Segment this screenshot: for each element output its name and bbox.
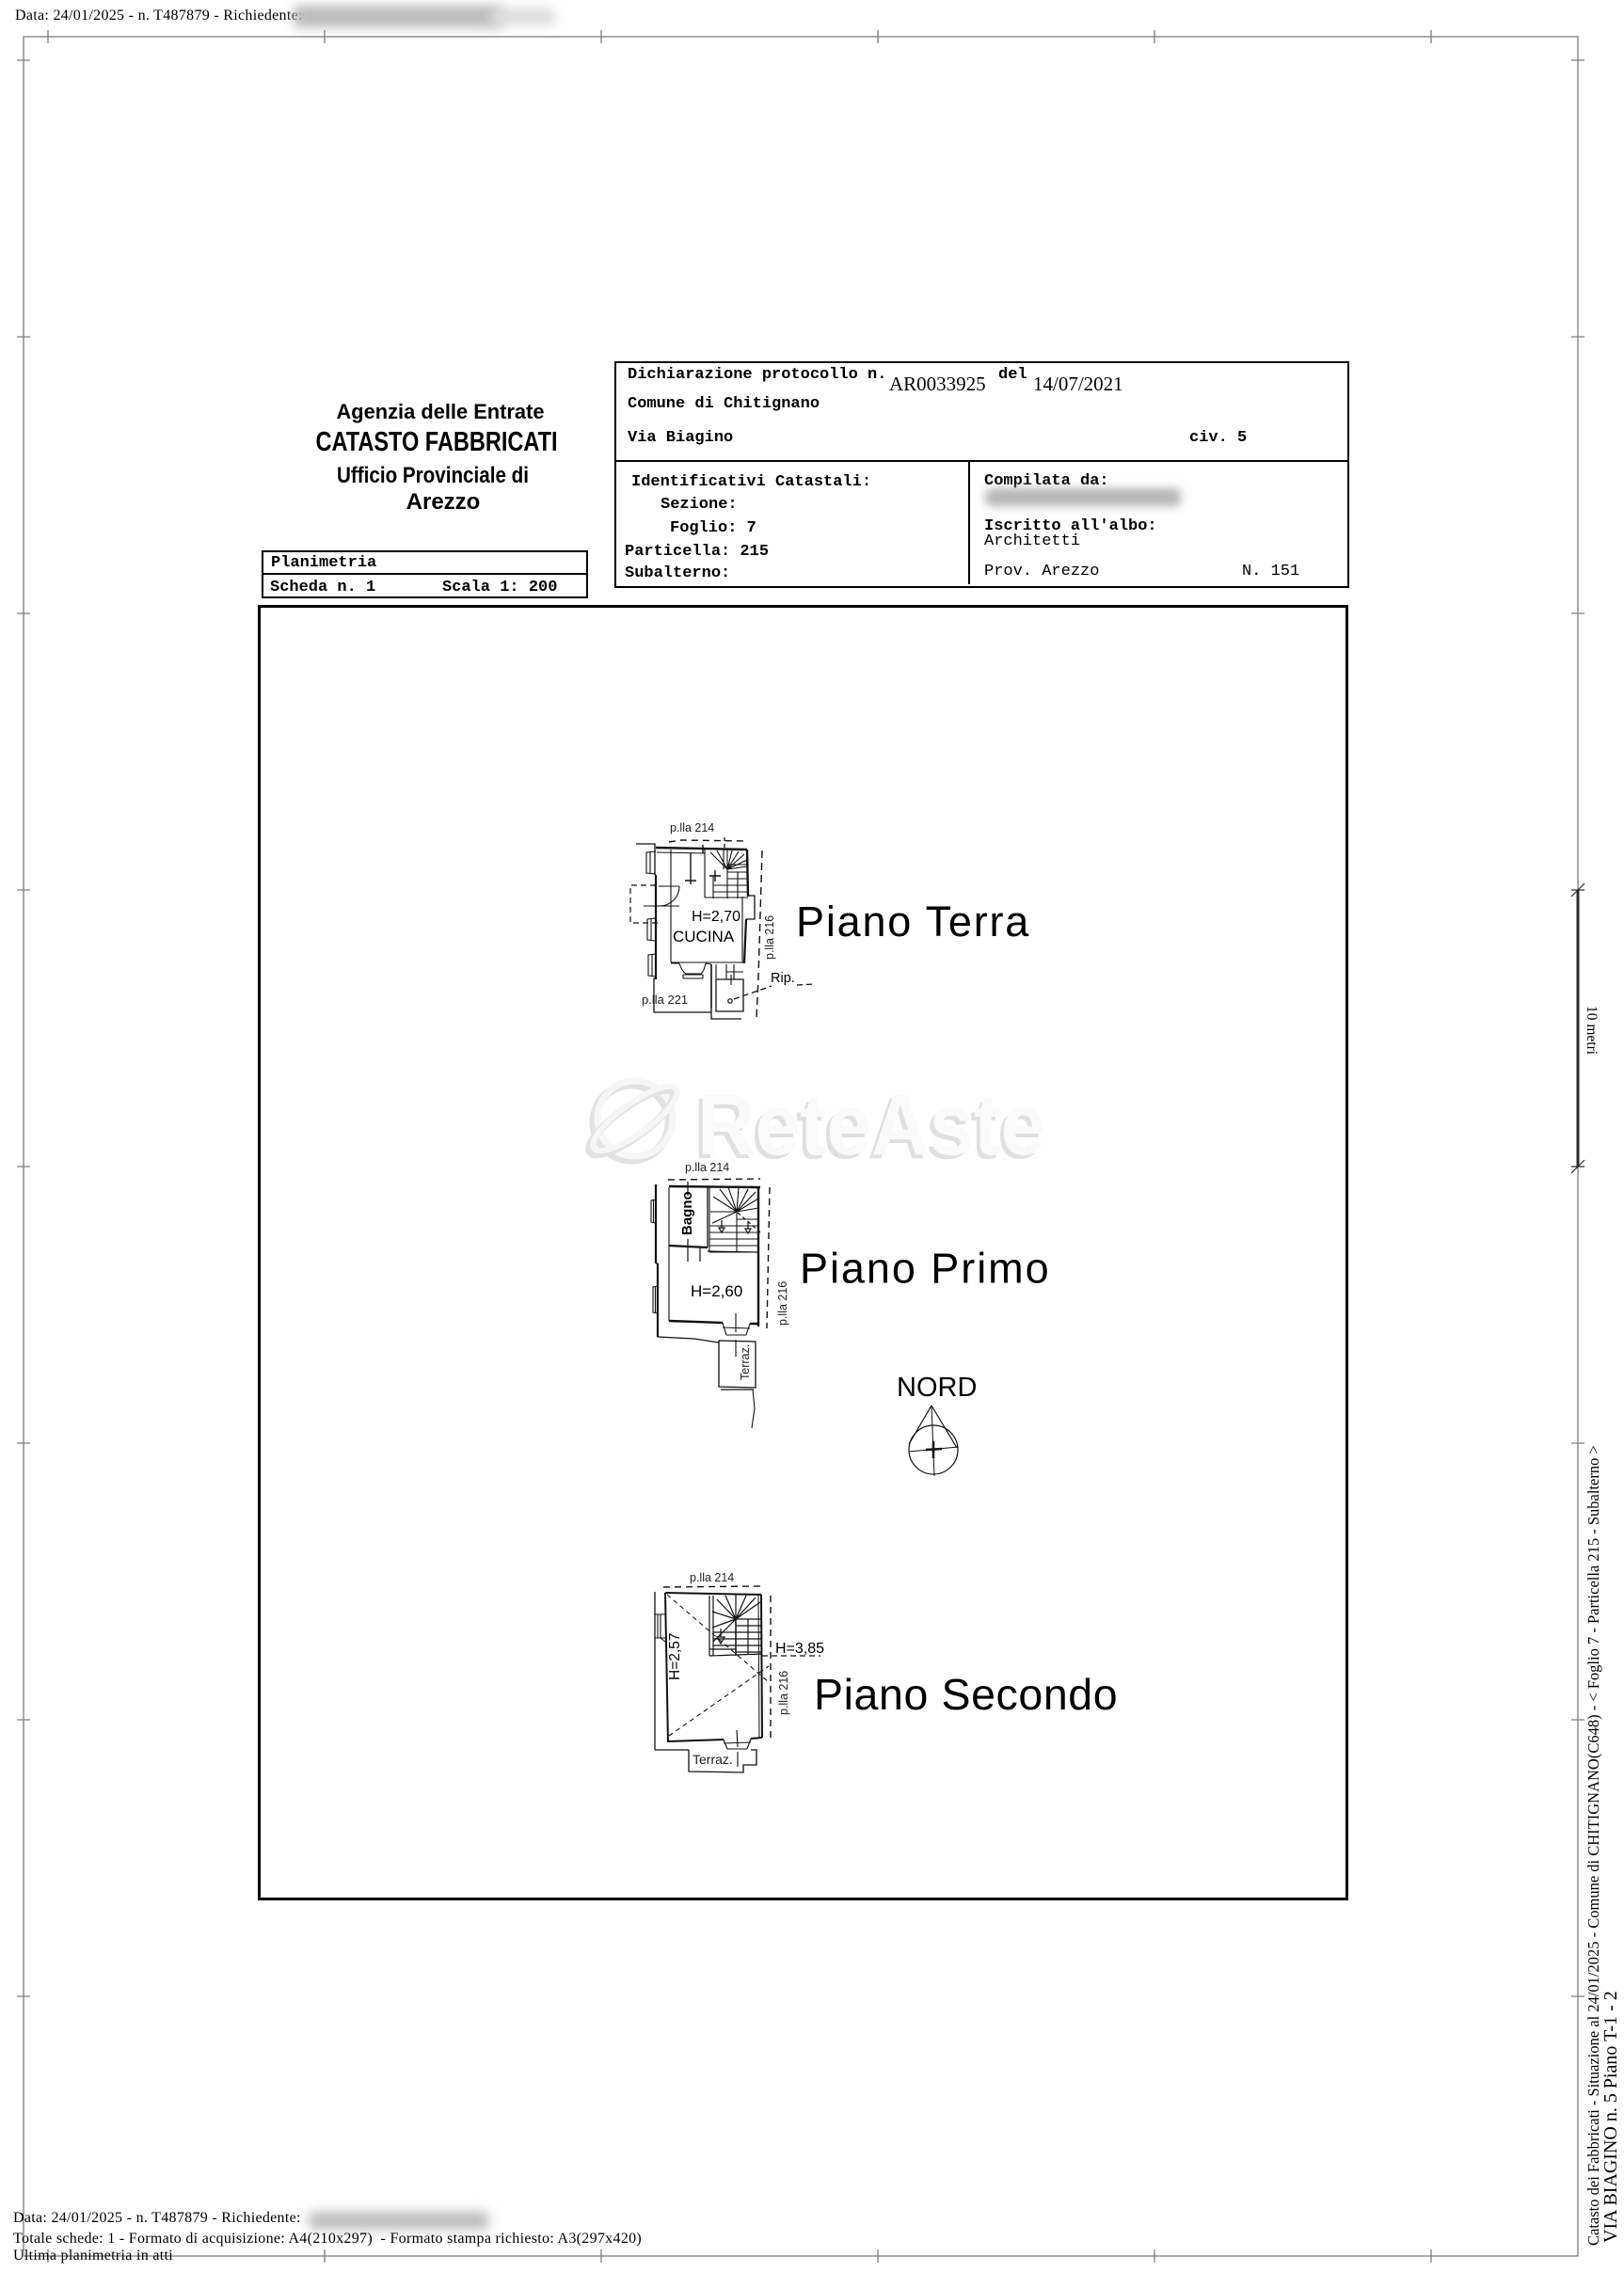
svg-text:Piano Primo: Piano Primo <box>800 1245 1051 1293</box>
svg-text:H=2,70: H=2,70 <box>692 909 740 925</box>
svg-text:p.lla 214: p.lla 214 <box>690 1571 734 1584</box>
svg-text:Piano Terra: Piano Terra <box>796 898 1030 945</box>
svg-text:CUCINA: CUCINA <box>673 928 735 945</box>
svg-text:10 metri: 10 metri <box>1584 1006 1600 1056</box>
svg-text:p.lla 216: p.lla 216 <box>776 1281 789 1326</box>
svg-text:Bagno: Bagno <box>679 1191 695 1235</box>
svg-text:Terraz.: Terraz. <box>693 1752 733 1767</box>
svg-text:p.lla 216: p.lla 216 <box>763 915 776 960</box>
svg-text:Terraz.: Terraz. <box>739 1344 752 1380</box>
svg-text:Rip.: Rip. <box>771 971 795 986</box>
svg-text:H=2,60: H=2,60 <box>691 1282 742 1300</box>
svg-text:H=2,57: H=2,57 <box>667 1633 683 1680</box>
svg-text:NORD: NORD <box>897 1373 977 1403</box>
svg-text:p.lla 214: p.lla 214 <box>670 821 714 834</box>
svg-text:p.lla 214: p.lla 214 <box>685 1161 729 1174</box>
svg-text:H=3,85: H=3,85 <box>775 1641 824 1657</box>
svg-text:Piano Secondo: Piano Secondo <box>814 1670 1118 1719</box>
svg-text:p.lla 221: p.lla 221 <box>642 993 688 1007</box>
svg-text:p.lla 216: p.lla 216 <box>777 1671 790 1715</box>
svg-text:VIA BIAGINO n. 5 Piano T-1 - 2: VIA BIAGINO n. 5 Piano T-1 - 2 <box>1600 1991 1621 2243</box>
